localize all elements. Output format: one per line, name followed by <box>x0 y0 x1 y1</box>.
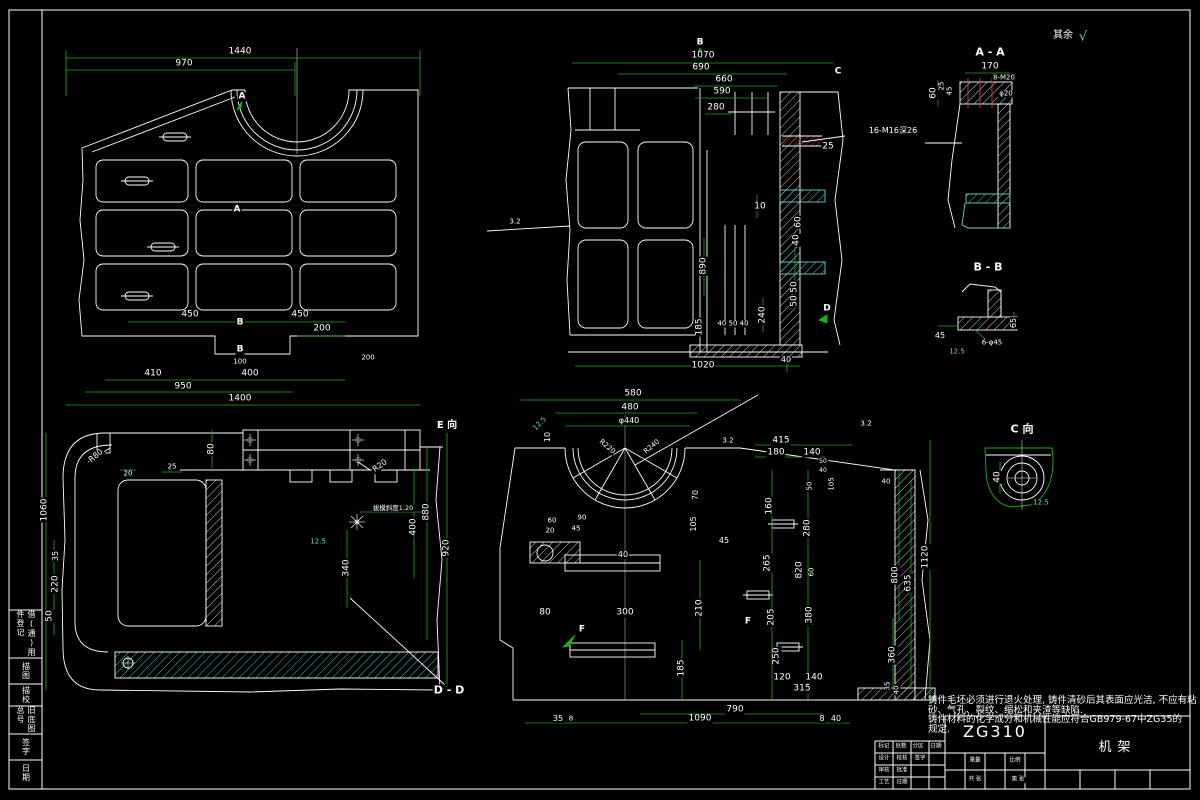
dimension-label: 105 <box>690 515 698 532</box>
dimension-label: 40 <box>793 233 802 246</box>
title-block-label: 重量 <box>968 758 981 764</box>
dimension-label: 380 <box>806 605 815 624</box>
dimension-label: 480 <box>620 404 639 413</box>
dimension-label: F <box>744 618 752 627</box>
dimension-label: 45 <box>571 526 582 533</box>
dimension-label: 1400 <box>228 395 253 404</box>
dimension-label: 3.2 <box>721 438 734 445</box>
dimension-label: 40 <box>894 685 901 696</box>
dimension-label: 105 <box>829 476 836 491</box>
crosshair-star <box>349 514 365 530</box>
dimension-label: 360 <box>889 645 898 664</box>
dimension-label: 60 <box>795 215 804 228</box>
view-bottom-left <box>62 430 445 692</box>
dimension-label: 10 <box>753 203 766 212</box>
view-top-plan <box>79 48 418 354</box>
margin-field-签字: 签字 <box>10 734 42 760</box>
dimension-label: F <box>578 626 586 635</box>
dimension-label: 50 <box>791 280 800 293</box>
drawing-geometry <box>0 0 1200 800</box>
dimension-label: 35 <box>52 550 60 562</box>
dimension-label: 690 <box>691 64 710 73</box>
dimension-label: B <box>236 319 245 328</box>
dimension-label: 790 <box>725 706 744 715</box>
title-block-label: 校核 <box>895 756 908 762</box>
dimension-label: 890 <box>700 256 709 275</box>
title-block-label: 标记 <box>877 744 890 750</box>
title-block-label: 分区 <box>911 744 924 750</box>
dimension-label: 1070 <box>691 52 716 61</box>
view-bottom-left-dims <box>46 430 447 690</box>
title-block-label: 审核 <box>877 768 890 774</box>
dimension-label: 25 <box>167 464 178 471</box>
margin-field-旧底图总号: 旧底图总号 <box>10 706 42 734</box>
dimension-label: 1120 <box>922 545 931 570</box>
dimension-label: 880 <box>423 502 432 521</box>
surface-finish-note: 其余 <box>1052 31 1074 41</box>
dimension-label: 250 <box>773 646 782 665</box>
dimension-label: 140 <box>802 449 821 458</box>
view-top-section <box>487 88 845 357</box>
material-spec: ZG310 <box>945 722 1045 741</box>
dimension-label: 8 <box>568 716 574 723</box>
dimension-label: 160 <box>766 496 775 515</box>
dimension-label: 450 <box>180 311 199 320</box>
dimension-label: 16-M16深26 <box>868 127 918 135</box>
view-title-c: C 向 <box>1010 424 1035 435</box>
dimension-label: 635 <box>905 573 914 592</box>
margin-field-借(通)用件登记: 借(通)用件登记 <box>10 610 42 658</box>
dimension-label: 45 <box>934 332 946 340</box>
dimension-label: 50 <box>818 459 828 465</box>
dimension-label: 315 <box>792 685 811 694</box>
dimension-label: 280 <box>706 104 725 113</box>
dimension-label: 280 <box>804 518 813 537</box>
dimension-label: 40 <box>881 479 892 486</box>
dimension-label: A <box>233 206 242 215</box>
dimension-label: 35 <box>885 681 892 692</box>
dimension-label: 140 <box>804 674 823 683</box>
view-bottom-middle <box>500 395 935 700</box>
dimension-label: 8 <box>818 715 825 723</box>
dimension-label: 220 <box>52 574 61 593</box>
dimension-label: 1090 <box>688 715 713 724</box>
part-name: 机架 <box>1045 736 1190 755</box>
dimension-label: 50 <box>46 609 55 622</box>
title-block-label: 批准 <box>895 768 908 774</box>
title-block-label: 比例 <box>1008 758 1021 764</box>
dimension-label: 660 <box>714 76 733 85</box>
dimension-label: 590 <box>712 88 731 97</box>
dimension-label: 40 50 40 <box>716 321 749 328</box>
dimension-label: 415 <box>771 437 790 446</box>
dimension-label: B <box>236 346 245 355</box>
dimension-label: 20 <box>123 471 134 478</box>
dimension-label: 3.2 <box>508 219 521 226</box>
dimension-label: φ440 <box>618 417 641 425</box>
dimension-label: 180 <box>766 449 785 458</box>
cad-drawing-canvas: 铸件毛坯必须进行退火处理, 铸件清砂后其表面应光洁, 不应有粘 砂、气孔、裂纹、… <box>0 0 1200 800</box>
title-block-label: 日期 <box>929 744 942 750</box>
dimension-label: B <box>696 39 705 48</box>
margin-field-日期: 日期 <box>10 760 42 786</box>
dimension-label: 400 <box>240 370 259 379</box>
dimension-label: 580 <box>623 390 642 399</box>
bolt-symbols <box>743 520 803 651</box>
dimension-label: 12.5 <box>1032 500 1050 507</box>
dimension-label: 185 <box>696 317 705 336</box>
dimension-label: 265 <box>764 553 773 572</box>
dimension-label: 50 <box>791 294 800 307</box>
dimension-label: 70 <box>692 489 700 501</box>
dimension-label: A <box>238 93 247 102</box>
dimension-label: 65 <box>1010 317 1018 329</box>
view-title-e: E 向 <box>436 421 458 431</box>
dimension-label: 35 <box>552 715 564 723</box>
dimension-label: 100 <box>232 359 247 366</box>
dimension-label: 950 <box>173 383 192 392</box>
dimension-label: 60 <box>547 518 558 525</box>
dimension-label: 920 <box>443 538 452 557</box>
margin-field-描图: 描图 <box>10 658 42 684</box>
dimension-label: 60 <box>809 567 816 578</box>
dimension-label: 170 <box>980 63 999 72</box>
section-title-d-d: D - D <box>433 685 466 696</box>
dimension-label: 8-M20 <box>992 75 1016 82</box>
dimension-label: 3.2 <box>859 421 872 428</box>
dimension-label: 200 <box>360 355 375 362</box>
dimension-label: 拔模斜度1:20 <box>372 505 415 512</box>
dimension-label: 40 <box>617 551 629 559</box>
dimension-label: 40 <box>780 356 792 364</box>
roughness-symbol: √ <box>1078 31 1088 44</box>
dimension-label: 410 <box>143 370 162 379</box>
dimension-label: 450 <box>290 311 309 320</box>
dimension-label: 50 <box>807 481 814 492</box>
dimension-label: 10 <box>544 431 552 443</box>
dimension-label: 1440 <box>228 48 253 57</box>
dimension-label: 340 <box>343 558 352 577</box>
dimension-label: 25 <box>821 143 834 152</box>
dimension-label: 45 <box>718 537 730 545</box>
dimension-label: 820 <box>796 560 805 579</box>
title-block-label: 共 张 <box>968 777 983 783</box>
title-block-label: 工艺 <box>877 780 890 786</box>
dimension-label: 80 <box>208 442 217 455</box>
title-block-label: 日期 <box>895 780 908 786</box>
dimension-label: 1060 <box>41 498 50 523</box>
dimension-label: 80 <box>538 609 551 618</box>
dimension-label: 40 <box>818 468 828 474</box>
dimension-label: 240 <box>759 305 768 324</box>
slot-symbols <box>121 133 191 300</box>
dimension-label: 60 <box>930 86 939 99</box>
dimension-label: 120 <box>772 674 791 683</box>
title-block-label: 签字 <box>913 756 926 762</box>
dimension-label: 205 <box>768 607 777 626</box>
dimension-label: 1020 <box>691 362 716 371</box>
dimension-label: 12.5 <box>948 349 966 356</box>
dimension-label: C <box>834 68 843 77</box>
dimension-label: 40 <box>994 470 1003 483</box>
view-bottom-middle-dims <box>520 400 930 723</box>
dimension-label: 970 <box>174 60 193 69</box>
margin-field-描校: 描校 <box>10 684 42 706</box>
dimension-label: 210 <box>696 598 705 617</box>
dimension-label: 800 <box>892 565 901 584</box>
section-title-a-a: A - A <box>974 47 1005 58</box>
dimension-label: φ20 <box>998 91 1014 98</box>
dimension-label: 90 <box>577 515 588 522</box>
dimension-label: 400 <box>410 517 419 536</box>
dimension-label: 12.5 <box>309 539 327 546</box>
title-block-label: 第 张 <box>1011 777 1026 783</box>
dimension-label: 300 <box>615 609 634 618</box>
section-title-b-b: B - B <box>973 262 1004 273</box>
dimension-label: 20 <box>545 528 556 535</box>
dimension-label: D <box>822 305 831 314</box>
dimension-label: 6-φ45 <box>981 340 1004 347</box>
dimension-label: 45 <box>947 86 954 97</box>
title-block-label: 处数 <box>894 744 907 750</box>
title-block-label: 设计 <box>877 756 890 762</box>
dimension-label: 25 <box>939 81 946 92</box>
dimension-label: 185 <box>678 658 687 677</box>
dimension-label: 200 <box>312 325 331 334</box>
dimension-label: 40 <box>830 715 842 723</box>
